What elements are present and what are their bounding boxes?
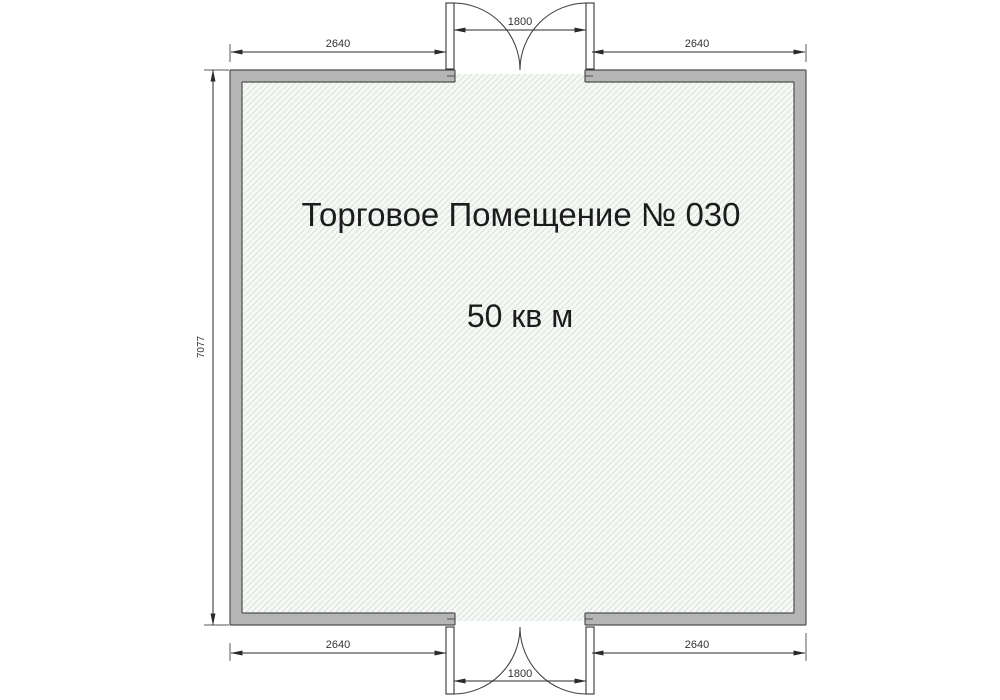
room-title: Торговое Помещение № 030 bbox=[301, 196, 740, 233]
wall-top-left-segment bbox=[230, 70, 455, 82]
dim-label-left-height: 7077 bbox=[196, 335, 207, 358]
door-top bbox=[446, 3, 594, 70]
wall-bottom-left-segment bbox=[230, 613, 455, 625]
door-bottom-right-leaf bbox=[586, 627, 594, 694]
door-bottom-left-leaf bbox=[446, 627, 454, 694]
top-doorway-floor-hatch bbox=[455, 74, 585, 82]
dim-label-top-door: 1800 bbox=[508, 16, 532, 28]
room-area-label: 50 кв м bbox=[467, 298, 573, 334]
door-top-left-leaf bbox=[446, 3, 454, 69]
wall-bottom-right-segment bbox=[585, 613, 806, 625]
door-top-right-swing-arc bbox=[520, 3, 587, 70]
dim-label-bottom-left: 2640 bbox=[326, 639, 350, 651]
door-top-right-leaf bbox=[586, 3, 594, 69]
door-top-left-swing-arc bbox=[453, 3, 520, 70]
wall-top-right-segment bbox=[585, 70, 806, 82]
dim-label-top-right: 2640 bbox=[685, 38, 709, 50]
dim-label-bottom-door: 1800 bbox=[508, 668, 532, 680]
door-bottom-right-swing-arc bbox=[520, 627, 587, 694]
floor-plan-drawing: 2640 1800 2640 7077 2640 1800 2640 Торго… bbox=[0, 0, 1000, 700]
room-interior-hatch bbox=[242, 82, 794, 613]
wall-right bbox=[794, 70, 806, 625]
floor-plan: 2640 1800 2640 7077 2640 1800 2640 Торго… bbox=[0, 0, 1000, 700]
door-bottom-left-swing-arc bbox=[453, 627, 520, 694]
bottom-doorway-floor-hatch bbox=[455, 613, 585, 621]
wall-left bbox=[230, 70, 242, 625]
door-bottom bbox=[446, 627, 594, 694]
dim-label-top-left: 2640 bbox=[326, 38, 350, 50]
dim-label-bottom-right: 2640 bbox=[685, 639, 709, 651]
